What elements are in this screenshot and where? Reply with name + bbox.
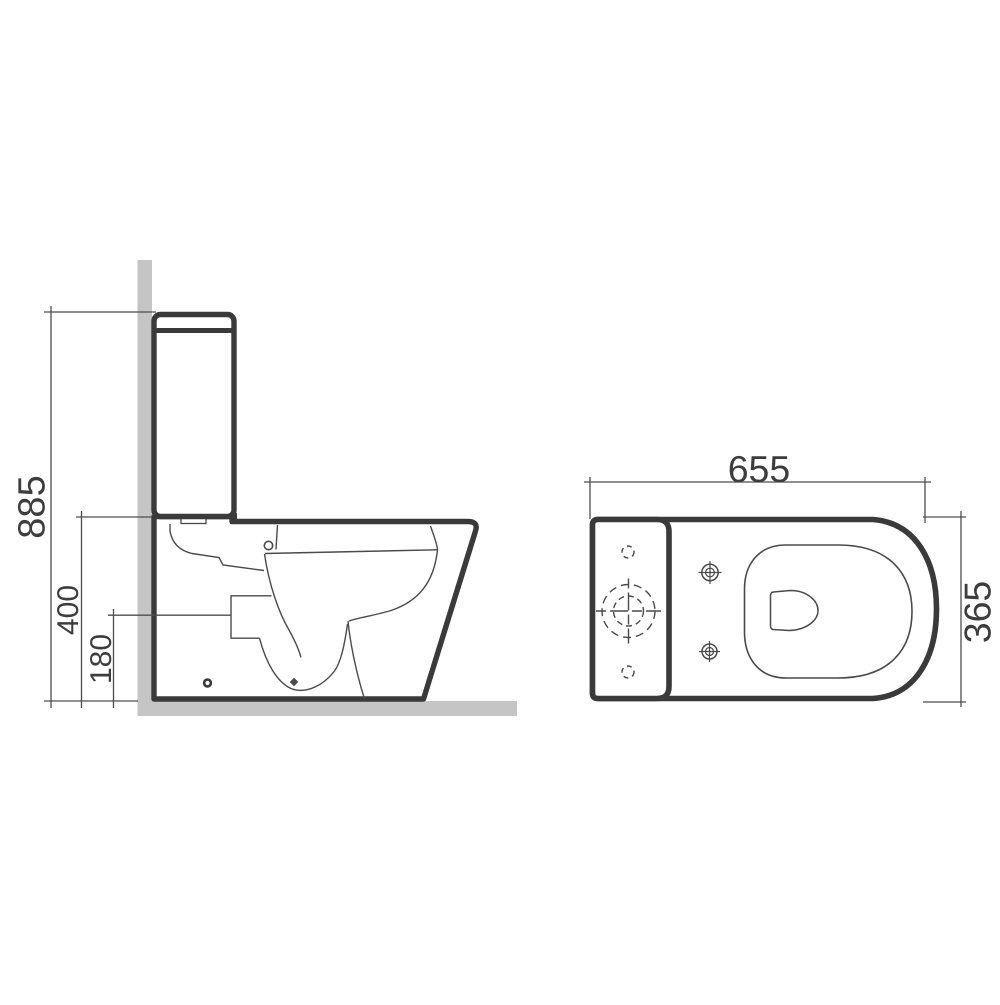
svg-text:655: 655 bbox=[728, 448, 791, 490]
svg-text:400: 400 bbox=[52, 585, 85, 635]
svg-text:365: 365 bbox=[957, 581, 999, 644]
svg-text:180: 180 bbox=[85, 634, 118, 684]
svg-text:885: 885 bbox=[12, 475, 54, 538]
